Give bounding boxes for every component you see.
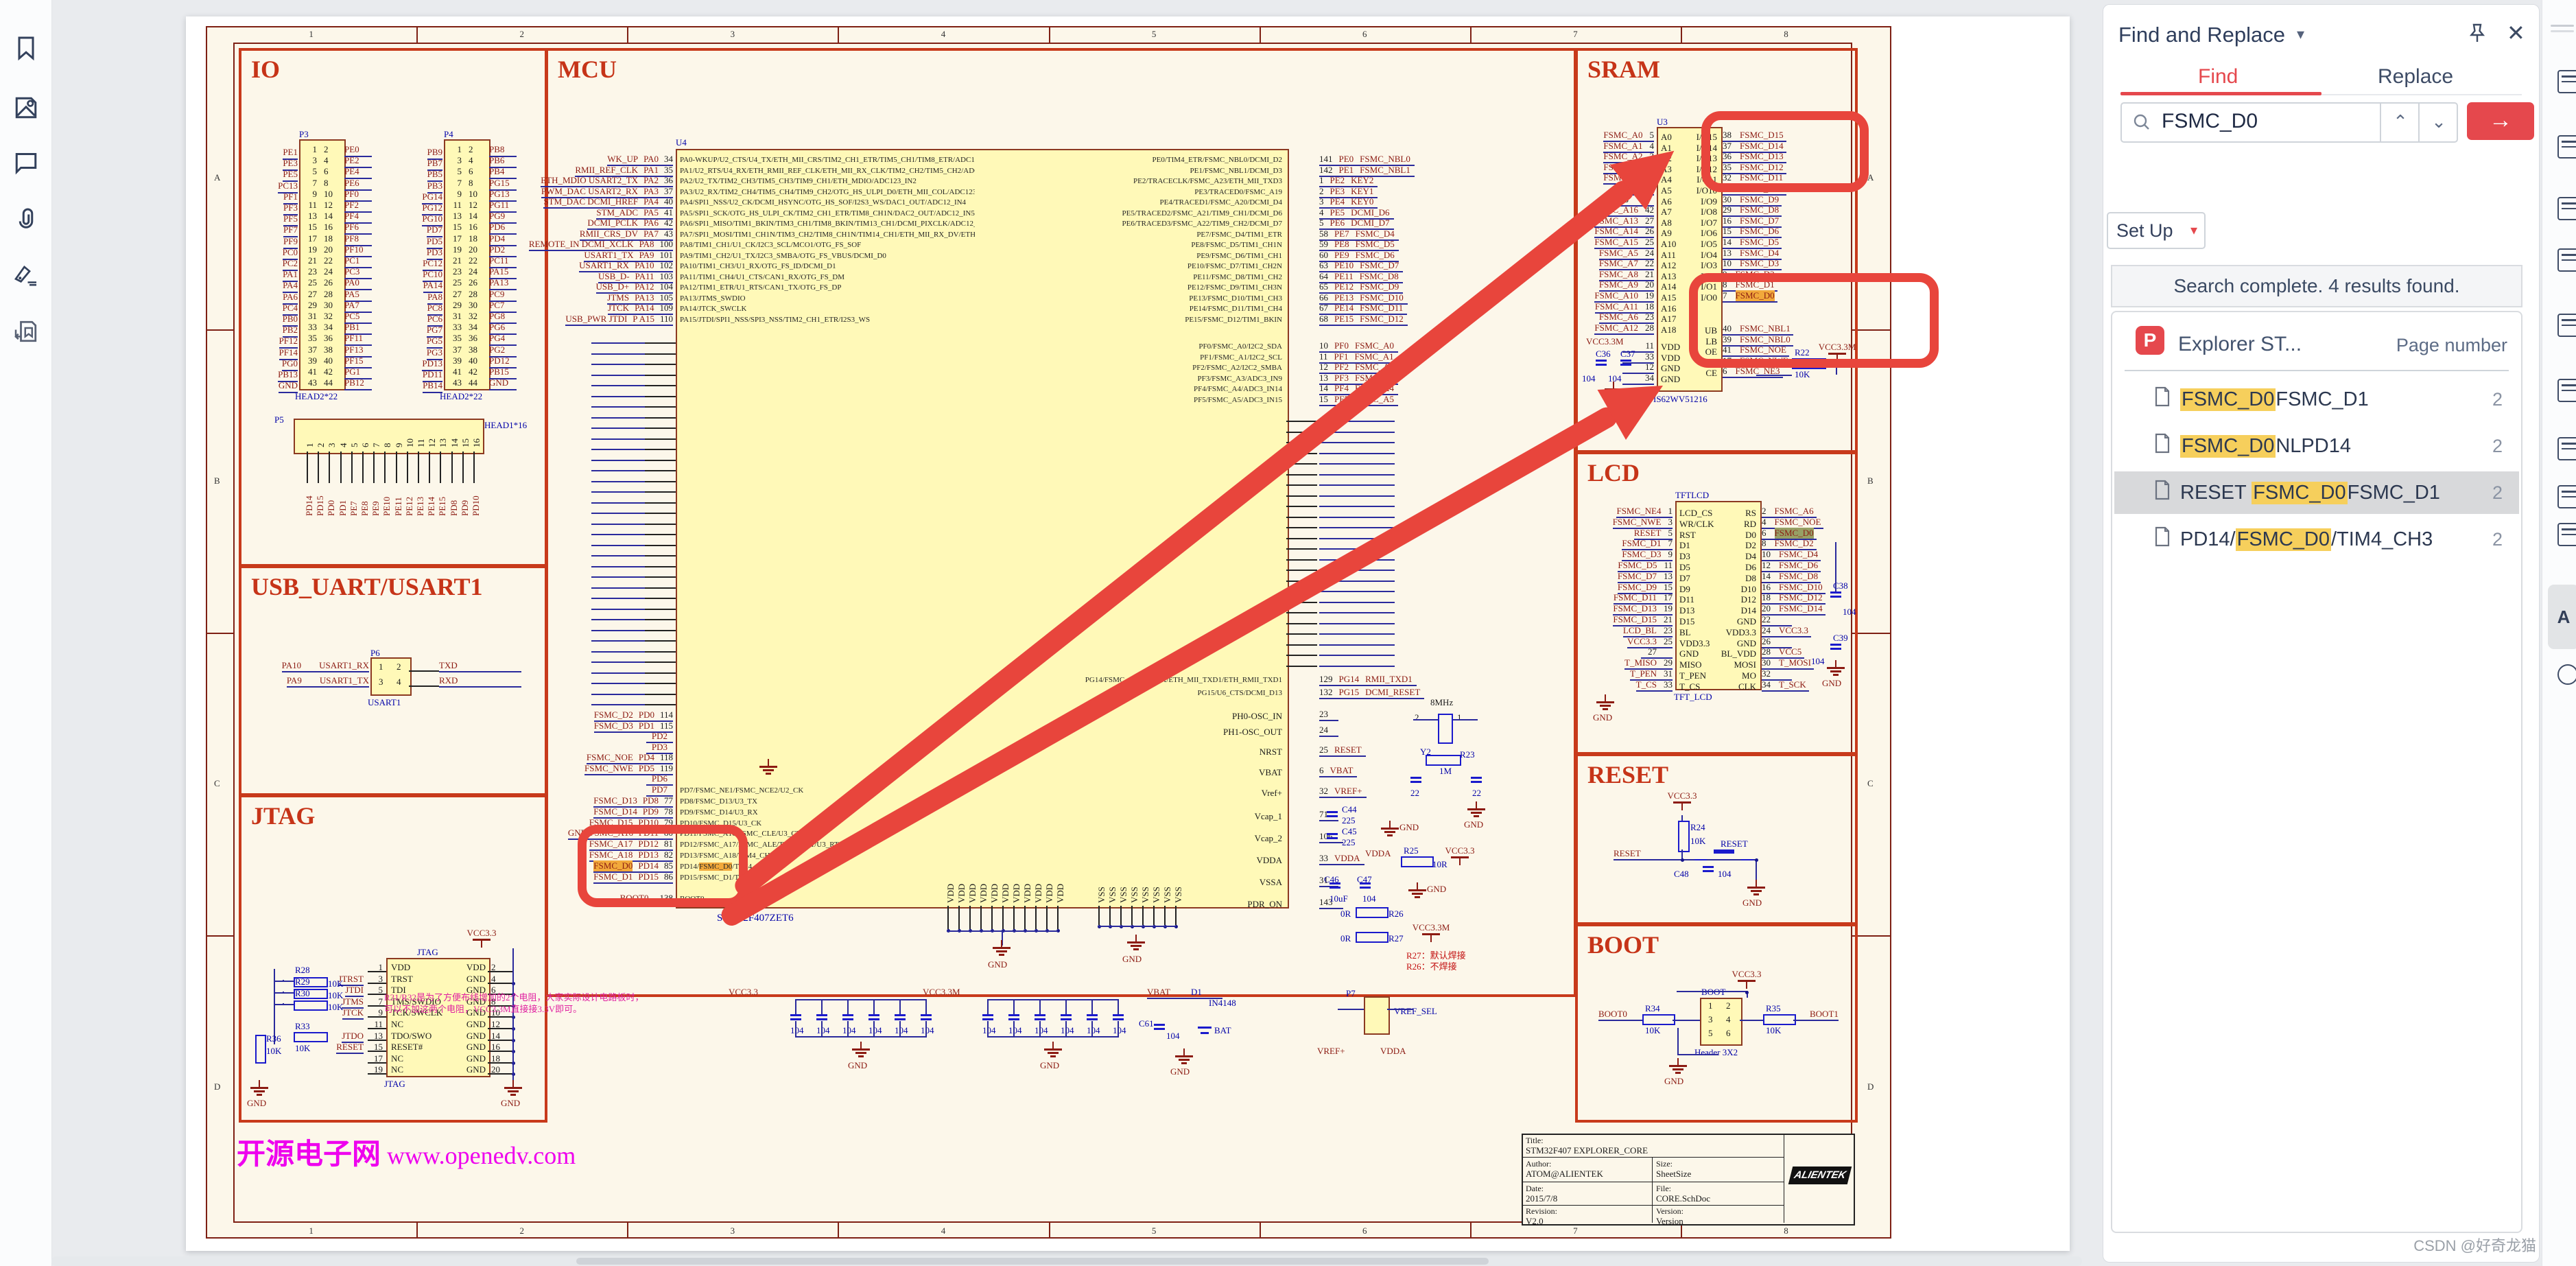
net-label: 4 bbox=[1726, 1014, 1731, 1025]
connector-type: HEAD2*22 bbox=[440, 391, 482, 402]
pin-number: 11 bbox=[453, 200, 462, 211]
drag-handle[interactable] bbox=[2551, 25, 2574, 27]
wire bbox=[645, 576, 676, 578]
pin-number: 41 bbox=[453, 366, 462, 377]
pin-function: PA6/SPI1_MISO/TIM1_BKIN/TIM3_CH1/TIM8_BK… bbox=[680, 220, 975, 228]
wire bbox=[1852, 633, 1891, 634]
net-label: R27 bbox=[1389, 933, 1404, 944]
sheet-column-label: 5 bbox=[1152, 1226, 1157, 1236]
wire bbox=[1065, 999, 1067, 1014]
net-label: PD10 bbox=[471, 495, 482, 516]
pin-name: BL_VDD bbox=[1721, 648, 1756, 659]
wire bbox=[1286, 538, 1317, 539]
wire bbox=[899, 1021, 901, 1036]
net-label: VDD bbox=[1055, 884, 1066, 903]
wire bbox=[1001, 940, 1002, 947]
connector-type: USART1 bbox=[368, 697, 401, 708]
title-block-value: V2.0 bbox=[1526, 1216, 1544, 1227]
annotation-note: R26：不焊接 bbox=[1406, 959, 1457, 972]
target-icon[interactable] bbox=[2557, 664, 2576, 685]
find-next-button[interactable]: ⌄ bbox=[2418, 104, 2458, 141]
pin-function: PE3/TRACED0/FSMC_A19 bbox=[1194, 188, 1282, 196]
pin-number: 22 bbox=[469, 255, 477, 266]
net-label: R34 bbox=[1645, 1003, 1660, 1014]
pin-function: PA4/SPI1_NSS/U2_CK/DCMI_HSYNC/OTG_HS_SOF… bbox=[680, 198, 966, 207]
pin-number: 20 bbox=[324, 244, 333, 255]
sheet-row-label: C bbox=[214, 778, 220, 789]
net-label: 104 bbox=[1087, 1025, 1100, 1036]
net-label: GND bbox=[1822, 678, 1841, 689]
wire bbox=[795, 999, 796, 1014]
net-label: D1 bbox=[1191, 987, 1202, 998]
edit-note-icon[interactable] bbox=[2557, 135, 2576, 159]
pin-name: GND bbox=[1661, 374, 1680, 385]
crystal bbox=[1438, 714, 1453, 744]
result-page-count: 2 bbox=[2492, 436, 2503, 457]
net-label: JTCK bbox=[342, 1007, 364, 1020]
search-input[interactable]: FSMC_D0 ⌃ ⌄ bbox=[2120, 102, 2458, 143]
wire bbox=[488, 1040, 512, 1041]
sheet-column-label: 6 bbox=[1362, 29, 1367, 40]
resistor bbox=[255, 1035, 266, 1064]
pin-function: PA3/U2_RX/TIM2_CH4/TIM5_CH4/TIM9_CH2/OTG… bbox=[680, 188, 975, 196]
wire bbox=[1135, 935, 1137, 941]
pin-name: A9 bbox=[1661, 228, 1672, 239]
tb-line bbox=[1652, 1157, 1653, 1223]
pin-number: 6 bbox=[360, 443, 371, 448]
net-label: 10K bbox=[1690, 836, 1705, 847]
close-icon[interactable]: ✕ bbox=[2507, 20, 2525, 46]
net-label: R36 bbox=[266, 1033, 281, 1044]
wire bbox=[307, 452, 308, 483]
net-label: GND bbox=[1122, 954, 1142, 965]
search-result-row[interactable]: FSMC_D0FSMC_D12 bbox=[2114, 378, 2519, 421]
net-label: VSS bbox=[1107, 887, 1118, 903]
net-label: GND bbox=[1664, 1076, 1683, 1087]
capacitor bbox=[842, 1018, 853, 1020]
wire bbox=[1756, 859, 1757, 882]
book-icon[interactable] bbox=[2557, 523, 2576, 546]
capacitor bbox=[1410, 777, 1421, 779]
net-label: RESET bbox=[1721, 839, 1748, 849]
wire bbox=[368, 1073, 386, 1075]
pin-name: D8 bbox=[1745, 573, 1756, 584]
pin-number: 6 bbox=[324, 166, 329, 177]
net-label: 104 bbox=[982, 1025, 996, 1036]
capacitor bbox=[816, 1014, 827, 1016]
gnd-symbol bbox=[852, 1048, 870, 1051]
wire bbox=[206, 935, 233, 937]
gnd-symbol bbox=[254, 1090, 265, 1092]
wire bbox=[1677, 1054, 1718, 1055]
wire bbox=[206, 633, 233, 634]
pin-name: D1 bbox=[1679, 540, 1690, 551]
capacitor bbox=[868, 1018, 879, 1020]
result-text: RESET FSMC_D0FSMC_D1 bbox=[2180, 482, 2440, 504]
project-icon: P bbox=[2136, 326, 2164, 355]
wire bbox=[645, 353, 676, 355]
pin-row: T_CS33 bbox=[1636, 680, 1673, 692]
panel-title-caret-icon[interactable]: ▾ bbox=[2297, 25, 2304, 43]
pin-number: 24 bbox=[324, 266, 333, 277]
wire bbox=[1319, 633, 1395, 635]
connector-type: JTAG bbox=[384, 1079, 405, 1090]
mcu-pin-row: 23 bbox=[1319, 710, 1338, 721]
search-go-button[interactable]: → bbox=[2467, 102, 2534, 140]
gnd-symbol bbox=[1048, 1052, 1059, 1054]
pin-function: PG14/FSMC_A25/U6_TX/ETH_MII_TXD1/ETH_RMI… bbox=[1085, 676, 1282, 684]
pin-name: GND bbox=[466, 1019, 486, 1030]
wire bbox=[488, 1016, 512, 1018]
pin-icon[interactable] bbox=[2465, 21, 2490, 46]
gnd-symbol bbox=[1747, 887, 1765, 889]
wire bbox=[206, 329, 233, 331]
wire bbox=[1319, 666, 1395, 667]
gnd-symbol bbox=[1044, 1048, 1062, 1051]
wire bbox=[451, 452, 453, 483]
title-block-label: Title: bbox=[1526, 1136, 1544, 1146]
wire bbox=[481, 941, 482, 948]
wire bbox=[1286, 548, 1317, 550]
pin-number: 40 bbox=[469, 355, 477, 366]
capacitor bbox=[1061, 1018, 1072, 1020]
pin-number: 4 bbox=[338, 443, 349, 448]
component-part: TFT_LCD bbox=[1674, 692, 1712, 703]
gnd-symbol bbox=[1600, 705, 1611, 707]
sheet-column-label: 5 bbox=[1152, 29, 1157, 40]
capacitor bbox=[1330, 887, 1340, 889]
wire bbox=[1681, 26, 1682, 43]
indent-icon[interactable] bbox=[2557, 437, 2576, 460]
battery bbox=[1201, 1032, 1209, 1034]
wire bbox=[1459, 858, 1461, 865]
pin-name: PDR_ON bbox=[1247, 899, 1282, 910]
resistor-ref: R30 bbox=[295, 988, 310, 999]
capacitor bbox=[1327, 815, 1338, 817]
project-name: Explorer ST... bbox=[2178, 333, 2302, 356]
wire bbox=[1147, 998, 1222, 999]
pin-name: NRST bbox=[1260, 747, 1282, 758]
pin-name: GND bbox=[466, 1064, 486, 1075]
scope-dropdown[interactable]: Set Up▾ bbox=[2107, 212, 2206, 249]
wire bbox=[795, 1021, 796, 1036]
wire bbox=[368, 971, 386, 972]
wire bbox=[1024, 906, 1026, 929]
pin-name: D14 bbox=[1741, 605, 1756, 616]
capacitor bbox=[868, 1014, 879, 1016]
net-label: 1 bbox=[1708, 1000, 1713, 1011]
gnd-symbol bbox=[1179, 1059, 1190, 1061]
wire bbox=[645, 470, 676, 471]
pin-function: PF2/FSMC_A2/I2C2_SMBA bbox=[1192, 364, 1282, 372]
wire bbox=[1286, 623, 1317, 624]
pin-function: PE8/FSMC_D5/TIM1_CH1N bbox=[1191, 241, 1282, 249]
search-result-row[interactable]: RESET FSMC_D0FSMC_D12 bbox=[2114, 471, 2519, 514]
pin-name: RESET# bbox=[391, 1042, 423, 1053]
wire bbox=[627, 1223, 628, 1239]
wire bbox=[645, 683, 676, 684]
power-net-label: VCC3.3M bbox=[1413, 922, 1450, 933]
net-label: VDD bbox=[967, 884, 978, 903]
connector-designator: P5 bbox=[274, 414, 284, 425]
net-label: 1M bbox=[1439, 766, 1452, 777]
comment-icon[interactable] bbox=[2557, 248, 2576, 272]
net-label: 10R bbox=[1432, 859, 1447, 870]
gnd-symbol bbox=[508, 1090, 519, 1092]
tab-replace[interactable]: Replace bbox=[2378, 65, 2453, 89]
wire bbox=[396, 452, 397, 483]
net-label: C39 bbox=[1833, 633, 1848, 644]
resistor-ref: R28 bbox=[295, 965, 310, 976]
gnd-symbol bbox=[1127, 941, 1145, 943]
panel-title: Find and Replace bbox=[2118, 23, 2285, 47]
pin-name: RS bbox=[1745, 508, 1756, 519]
search-result-row[interactable]: PD14/FSMC_D0/TIM4_CH32 bbox=[2114, 518, 2519, 561]
block-title-sram: SRAM bbox=[1587, 55, 1660, 84]
tb-line bbox=[1784, 1134, 1784, 1223]
wire bbox=[1598, 1020, 1642, 1021]
connector-type: HEAD2*22 bbox=[295, 391, 338, 402]
gnd-symbol bbox=[1675, 1072, 1681, 1074]
drag-handle[interactable] bbox=[2551, 30, 2574, 32]
net-label: PD15 bbox=[315, 495, 326, 516]
block-title-boot: BOOT bbox=[1587, 930, 1659, 959]
pin-name: NC bbox=[391, 1053, 403, 1064]
net-label: P7 bbox=[1346, 988, 1356, 999]
block-title-usb: USB_UART/USART1 bbox=[251, 572, 483, 601]
block-title-reset: RESET bbox=[1587, 760, 1668, 789]
block-title-mcu: MCU bbox=[558, 55, 617, 84]
pin-name: T_CS bbox=[1679, 681, 1700, 692]
net-label: VDDA bbox=[1365, 848, 1391, 859]
wire bbox=[873, 999, 875, 1014]
pin-number: 1 bbox=[305, 443, 316, 448]
wire bbox=[351, 452, 353, 483]
pin-name: LCD_CS bbox=[1679, 508, 1712, 519]
net-label: GND bbox=[988, 959, 1007, 970]
sheet-column-label: 8 bbox=[1784, 29, 1788, 40]
doc-icon[interactable] bbox=[2557, 197, 2576, 220]
pin-name: D7 bbox=[1679, 573, 1690, 584]
net-label: VSS bbox=[1096, 887, 1107, 903]
pin-name: VDD bbox=[391, 962, 410, 973]
connector-designator: P4 bbox=[444, 129, 453, 140]
wire bbox=[1091, 1021, 1093, 1036]
net-label: 5 bbox=[1708, 1028, 1713, 1039]
capacitor bbox=[816, 1018, 827, 1020]
pin-name: GND bbox=[1737, 616, 1756, 627]
net-label: VREF_SEL bbox=[1394, 1006, 1437, 1017]
net-label: JTDO bbox=[342, 1031, 364, 1043]
pin-number: 3 bbox=[458, 155, 462, 166]
pin-name: A10 bbox=[1661, 239, 1676, 250]
gnd-symbol bbox=[510, 1094, 516, 1096]
resistor bbox=[1356, 932, 1389, 943]
wire bbox=[1286, 644, 1317, 646]
capacitor bbox=[895, 1014, 906, 1016]
wire bbox=[925, 999, 927, 1014]
pin-name: I/O8 bbox=[1701, 207, 1717, 218]
copy-icon[interactable] bbox=[2557, 485, 2576, 508]
pin-name: VDD bbox=[1661, 342, 1680, 353]
net-label: 1 bbox=[379, 661, 383, 672]
wire bbox=[1286, 495, 1317, 497]
note-icon[interactable] bbox=[2557, 70, 2576, 93]
net-label: 10K bbox=[295, 1043, 310, 1054]
pin-name: I/O9 bbox=[1701, 196, 1717, 207]
pin-number: 39 bbox=[453, 355, 462, 366]
net-label: R33 bbox=[295, 1021, 310, 1032]
pin-name: MOSI bbox=[1734, 659, 1756, 670]
wire bbox=[627, 26, 628, 43]
tab-find[interactable]: Find bbox=[2198, 65, 2238, 89]
component-designator: TFTLCD bbox=[1675, 490, 1709, 501]
pin-name: GND bbox=[1661, 363, 1680, 374]
pin-number: 7 bbox=[371, 443, 382, 448]
pin-number: 6 bbox=[469, 166, 473, 177]
wire bbox=[1046, 906, 1048, 929]
wire bbox=[488, 1062, 512, 1064]
gnd-symbol bbox=[250, 1087, 268, 1089]
wire bbox=[1319, 484, 1395, 486]
wire bbox=[1793, 1020, 1839, 1021]
title-block-label: Version: bbox=[1656, 1206, 1683, 1217]
wire bbox=[1319, 655, 1395, 656]
find-previous-button[interactable]: ⌃ bbox=[2380, 104, 2420, 141]
title-block-value: Version bbox=[1656, 1216, 1683, 1227]
net-label: R35 bbox=[1766, 1003, 1781, 1014]
pin-name: I/O5 bbox=[1701, 239, 1717, 250]
pin-number: 25 bbox=[453, 277, 462, 288]
result-text: PD14/FSMC_D0/TIM4_CH3 bbox=[2180, 528, 2433, 551]
pin-function: PF3/FSMC_A3/ADC3_IN9 bbox=[1198, 375, 1282, 383]
wire bbox=[645, 545, 676, 546]
capacitor bbox=[1008, 1018, 1019, 1020]
outline-icon[interactable] bbox=[2557, 314, 2576, 337]
wire bbox=[368, 1040, 386, 1041]
red-annotation-box bbox=[1689, 273, 1939, 368]
search-value: FSMC_D0 bbox=[2162, 110, 2258, 133]
pin-number: 42 bbox=[469, 366, 477, 377]
net-label: 10K bbox=[1766, 1025, 1781, 1036]
capacitor bbox=[982, 1014, 993, 1016]
net-label: 4 bbox=[397, 677, 401, 688]
pin-name: Vref+ bbox=[1262, 788, 1282, 799]
wire bbox=[795, 1036, 927, 1038]
net-label: PE13 bbox=[415, 497, 426, 516]
wire bbox=[1118, 999, 1119, 1014]
capacitor bbox=[1596, 364, 1607, 366]
wire bbox=[1677, 1028, 1679, 1055]
pin-number: 14 bbox=[469, 211, 477, 222]
pin-function: PA2/U2_TX/TIM2_CH3/TIM5_CH3/TIM9_CH1/ETH… bbox=[680, 177, 917, 185]
net-label: GND bbox=[1427, 884, 1446, 895]
pin-number: 31 bbox=[453, 311, 462, 322]
wire bbox=[512, 1080, 514, 1087]
net-label: GND bbox=[1464, 819, 1483, 830]
title-block-label: File: bbox=[1656, 1184, 1671, 1194]
pin-number: 27 bbox=[453, 289, 462, 300]
pin-number: 21 bbox=[453, 255, 462, 266]
wire bbox=[645, 630, 676, 631]
search-result-row[interactable]: FSMC_D0NLPD142 bbox=[2114, 425, 2519, 467]
pin-name: VDD bbox=[1661, 353, 1680, 364]
wire bbox=[987, 1036, 1119, 1038]
block-title-lcd: LCD bbox=[1587, 458, 1640, 487]
net-label: VDD bbox=[1000, 884, 1011, 903]
pin-function: PE1/FSMC_NBL1/DCMI_D3 bbox=[1190, 167, 1282, 175]
capacitor bbox=[1035, 1014, 1045, 1016]
result-page-count: 2 bbox=[2492, 389, 2503, 410]
scrollbar-thumb[interactable] bbox=[576, 1258, 1489, 1265]
power-net-label: VCC3.3M bbox=[1586, 336, 1624, 347]
wire bbox=[645, 672, 676, 674]
wire bbox=[645, 406, 676, 408]
pin-name: MISO bbox=[1679, 659, 1702, 670]
pin-number: 39 bbox=[308, 355, 317, 366]
alientek-logo: ALIENTEK bbox=[1788, 1167, 1852, 1184]
net-label: C46 bbox=[1324, 874, 1339, 885]
pin-name: I/O6 bbox=[1701, 228, 1717, 239]
net-label: 104 bbox=[868, 1025, 882, 1036]
annotate-icon[interactable]: A bbox=[2548, 585, 2576, 649]
mcu-pin-row: 25RESET bbox=[1319, 745, 1366, 757]
capacitor bbox=[1703, 870, 1714, 872]
wire bbox=[1286, 506, 1317, 507]
pin-number: 21 bbox=[308, 255, 317, 266]
pin-function: PE7/FSMC_D4/TIM1_ETR bbox=[1196, 231, 1282, 239]
pin-name: A8 bbox=[1661, 218, 1672, 228]
pin-number: 35 bbox=[453, 333, 462, 344]
horizontal-scrollbar[interactable] bbox=[51, 1256, 2082, 1266]
net-label: 0R bbox=[1340, 933, 1351, 944]
wire bbox=[462, 452, 464, 483]
pin-function: PE4/TRACED1/FSMC_A20/DCMI_D4 bbox=[1160, 198, 1282, 207]
net-label: 104 bbox=[842, 1025, 856, 1036]
dropdown-caret-icon: ▾ bbox=[2190, 213, 2197, 248]
block-title-jtag: JTAG bbox=[251, 801, 315, 830]
wire bbox=[838, 26, 839, 43]
pin-name: TRST bbox=[391, 974, 413, 985]
pin-number: 43 bbox=[453, 377, 462, 388]
gnd-symbol bbox=[1467, 808, 1485, 810]
wire bbox=[1319, 623, 1395, 624]
net-row: PA10USART1_RX bbox=[282, 660, 369, 672]
pin-number: 38 bbox=[324, 344, 333, 355]
pin-function: PE14/FSMC_D11/TIM1_CH4 bbox=[1190, 305, 1282, 313]
mcu-pin-row: 32VREF+ bbox=[1319, 786, 1367, 798]
pin-function: PE6/TRACED3/FSMC_A22/TIM9_CH2/DCMI_D7 bbox=[1122, 220, 1282, 228]
pen-icon[interactable] bbox=[2557, 379, 2576, 402]
net-label: VDDA bbox=[1380, 1046, 1406, 1057]
pin-name: I/O3 bbox=[1701, 260, 1717, 271]
net-label: VCC3.3M bbox=[923, 987, 960, 998]
pin-number: 38 bbox=[469, 344, 477, 355]
sheet-column-label: 2 bbox=[519, 1226, 524, 1236]
pin-number: 10 bbox=[324, 189, 333, 200]
pin-number: 16 bbox=[469, 222, 477, 233]
gnd-symbol bbox=[257, 1094, 262, 1096]
wire bbox=[645, 694, 676, 695]
pin-number: 9 bbox=[458, 189, 462, 200]
pin-function: PA14/JTCK_SWCLK bbox=[680, 305, 746, 313]
wire bbox=[987, 999, 1119, 1000]
pin-number: 2 bbox=[316, 443, 327, 448]
pin-number: 31 bbox=[308, 311, 317, 322]
pin-name: GND bbox=[466, 1031, 486, 1042]
net-label: PE10 bbox=[381, 497, 392, 516]
wire bbox=[1387, 1009, 1413, 1010]
